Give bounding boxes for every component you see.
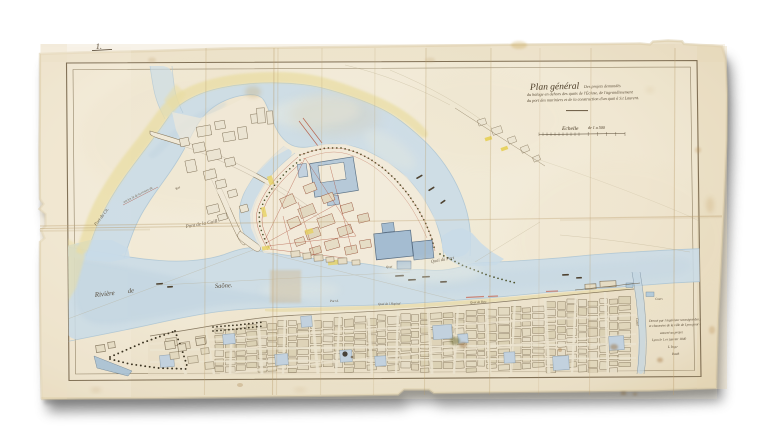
svg-text:Cours: Cours (655, 297, 664, 301)
svg-text:Quai: Quai (386, 265, 393, 269)
svg-text:Echelle: Echelle (561, 126, 579, 132)
svg-text:1.: 1. (96, 42, 103, 51)
svg-text:de: de (127, 287, 134, 295)
svg-text:Des projets demandés: Des projets demandés (583, 83, 621, 89)
svg-text:Quai de l Hopital: Quai de l Hopital (378, 302, 401, 306)
svg-text:Port d.: Port d. (329, 299, 339, 303)
svg-text:L Ing.r: L Ing.r (667, 345, 679, 349)
svg-text:annexé au projet: annexé au projet (660, 330, 684, 335)
svg-text:Canal: Canal (635, 318, 640, 326)
svg-text:Saône.: Saône. (215, 282, 233, 290)
